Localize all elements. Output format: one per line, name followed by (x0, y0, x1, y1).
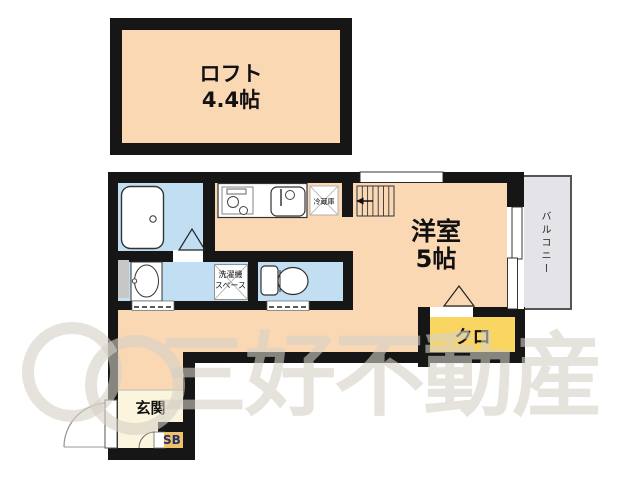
toilet-icon (261, 266, 308, 295)
sliding-door-toilet (267, 301, 309, 311)
bath-door-gap (173, 250, 203, 262)
shoe-box-label: SB (163, 433, 183, 447)
entrance-label: 玄関 (118, 397, 183, 418)
washbasin-icon (131, 262, 162, 301)
stairs-icon (356, 186, 394, 216)
closet-door-icon (444, 286, 474, 306)
top-window (360, 172, 443, 183)
western-room-size: 5帖 (376, 246, 496, 273)
fridge-label: 冷蔵庫 (309, 197, 339, 207)
washer-space-label: 洗濯機 スペース (213, 269, 248, 291)
bathtub-icon (122, 187, 164, 249)
bath-door-icon (179, 229, 205, 250)
balcony-window (507, 207, 524, 309)
closet-label: クロ (430, 323, 515, 349)
western-room-label: 洋室 5帖 (376, 218, 496, 273)
entrance-door-icon (64, 400, 117, 448)
western-room-name: 洋室 (376, 218, 496, 246)
closet-door-gap (430, 307, 473, 317)
balcony-label: バルコニー (537, 211, 552, 276)
sliding-door-washroom (132, 301, 174, 311)
shoebox-door-icon (139, 432, 165, 448)
floor-plan: ロフト 4.4帖 (0, 0, 640, 480)
left-wall-window (118, 260, 129, 298)
kitchen-counter-icon (218, 184, 307, 218)
